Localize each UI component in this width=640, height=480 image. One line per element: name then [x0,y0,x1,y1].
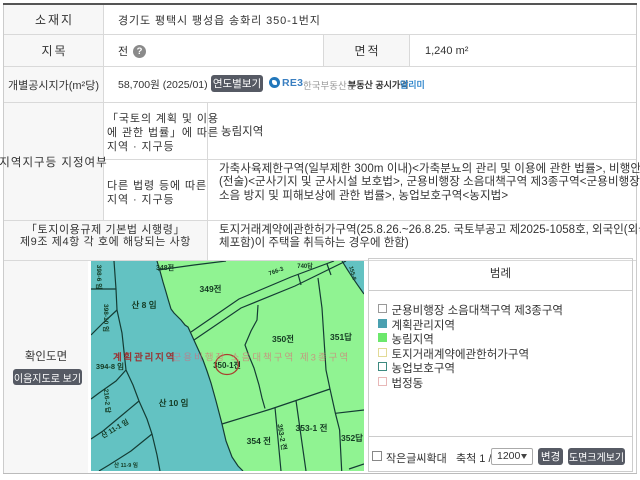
svg-text:398-10 임: 398-10 임 [102,304,111,332]
svg-text:산 11-9 임: 산 11-9 임 [114,461,138,469]
svg-text:348전: 348전 [156,263,174,272]
svg-text:740답: 740답 [297,262,313,270]
svg-text:계획관리지역: 계획관리지역 [113,352,176,364]
svg-text:산 10 임: 산 10 임 [159,398,189,408]
svg-text:349전: 349전 [199,284,221,294]
svg-text:350전: 350전 [272,334,294,344]
svg-text:354 전: 354 전 [247,436,272,446]
svg-text:군용비행장 소음대책구역 제3종구역: 군용비행장 소음대책구역 제3종구역 [173,352,351,364]
svg-text:산 8 임: 산 8 임 [131,300,156,310]
svg-text:398-6 임: 398-6 임 [95,265,104,289]
svg-text:353-1 전: 353-1 전 [296,423,328,433]
svg-text:352답: 352답 [341,433,363,443]
svg-text:351답: 351답 [330,332,352,342]
